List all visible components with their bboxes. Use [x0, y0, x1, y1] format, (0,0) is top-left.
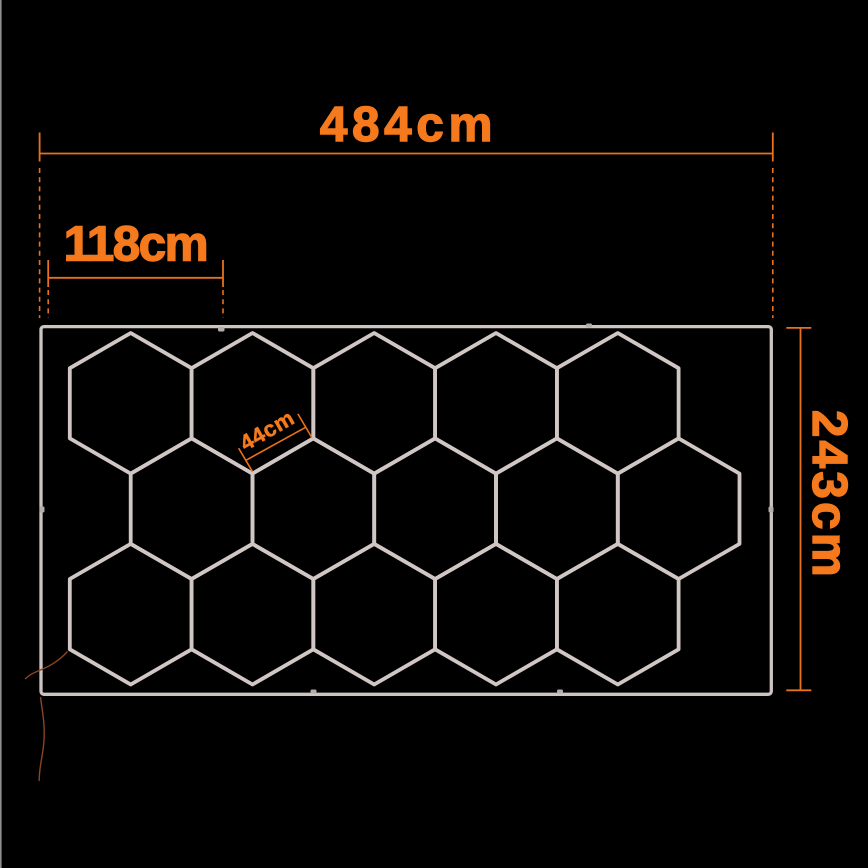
svg-text:118cm: 118cm — [64, 217, 207, 272]
svg-text:243cm: 243cm — [802, 410, 857, 580]
svg-text:484cm: 484cm — [320, 97, 497, 152]
